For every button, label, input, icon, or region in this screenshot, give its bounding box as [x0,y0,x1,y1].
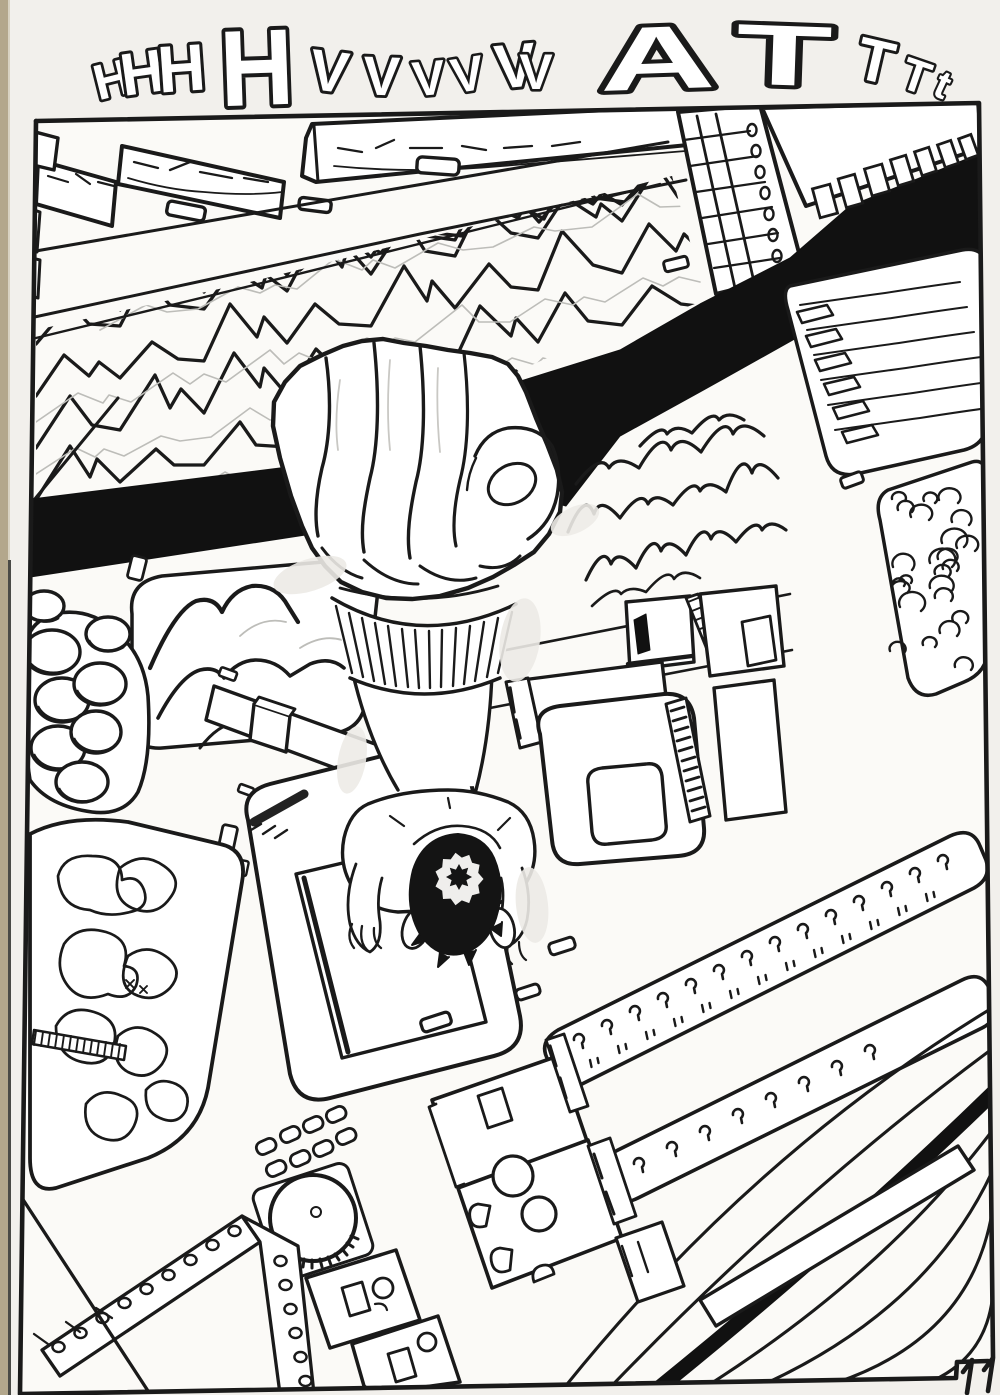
svg-text:V: V [410,51,448,108]
svg-text:V: V [519,44,553,100]
svg-text:A: A [597,7,716,111]
svg-text:V: V [362,44,401,107]
svg-text:V: V [306,37,353,106]
svg-text:T: T [734,6,833,105]
svg-text:H: H [155,29,208,106]
svg-text:H: H [218,6,296,130]
